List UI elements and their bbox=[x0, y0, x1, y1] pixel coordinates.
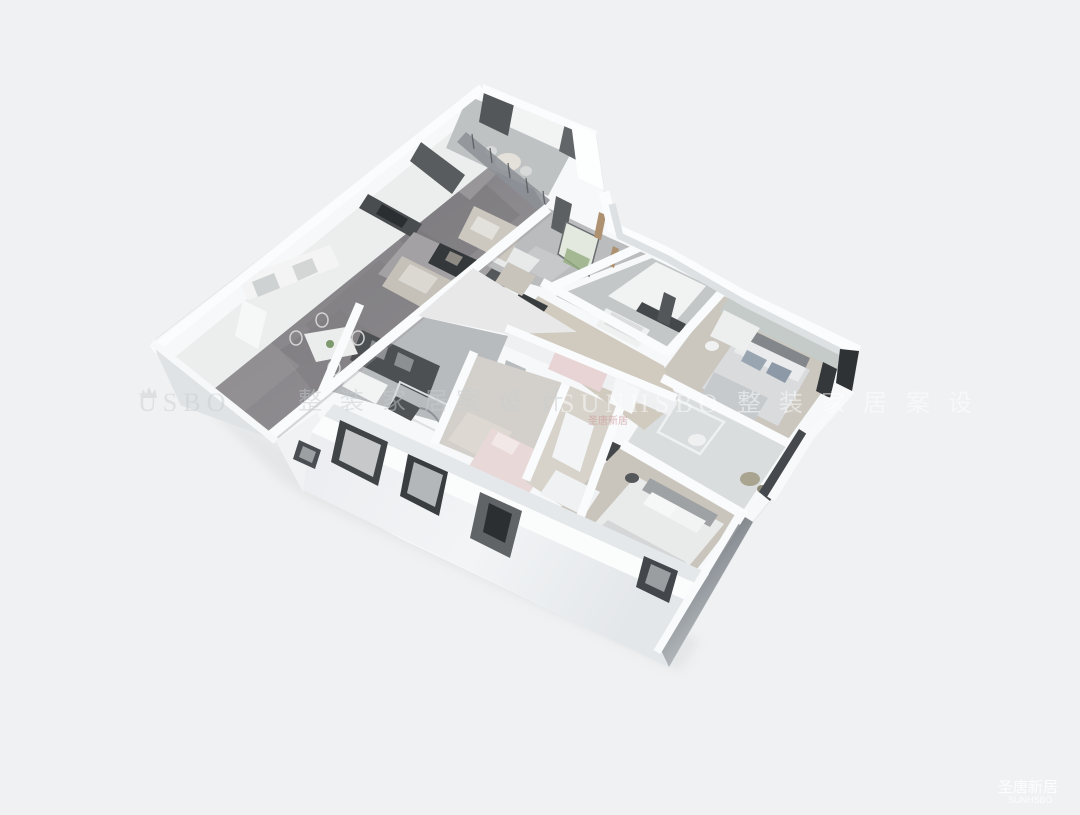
svg-text:整 装 家 居: 整 装 家 居 bbox=[298, 388, 454, 415]
svg-text:SUNHSBO: SUNHSBO bbox=[1008, 795, 1053, 805]
svg-text:USBO: USBO bbox=[138, 388, 231, 417]
svg-text:案 设: 案 设 bbox=[906, 390, 978, 417]
svg-text:整 装 家 居: 整 装 家 居 bbox=[737, 390, 893, 417]
svg-text:SUNHSBO: SUNHSBO bbox=[560, 389, 723, 418]
svg-text:圣唐新居: 圣唐新居 bbox=[998, 779, 1058, 796]
svg-text:圣唐新居: 圣唐新居 bbox=[588, 414, 628, 427]
svg-text:案 设 计: 案 设 计 bbox=[456, 388, 570, 415]
